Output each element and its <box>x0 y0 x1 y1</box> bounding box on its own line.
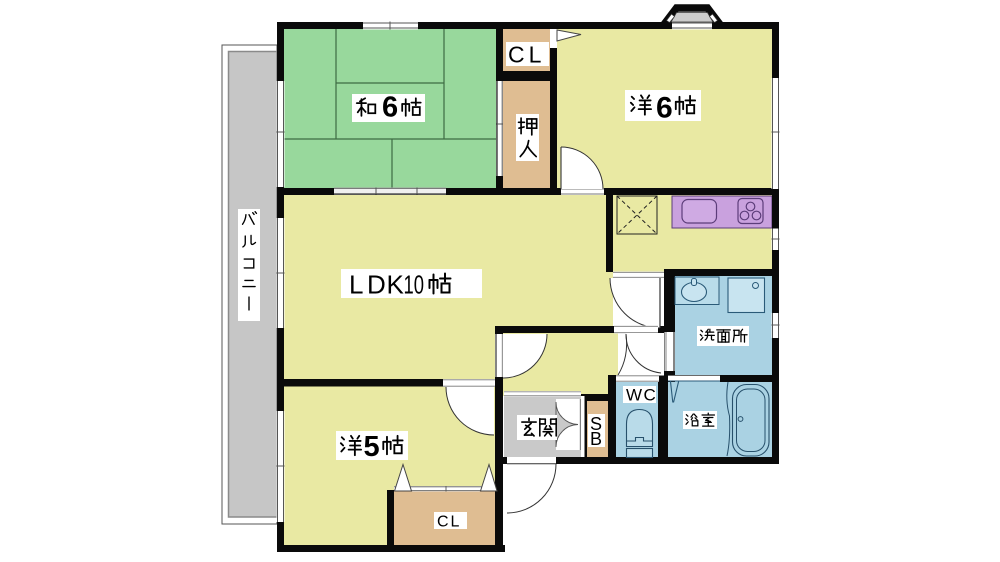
svg-text:10: 10 <box>404 270 425 300</box>
svg-text:K: K <box>387 270 405 300</box>
svg-text:6: 6 <box>656 92 673 125</box>
svg-text:6: 6 <box>382 92 398 124</box>
svg-text:WC: WC <box>626 386 657 405</box>
svg-text:D: D <box>367 270 386 300</box>
svg-text:L: L <box>349 270 363 300</box>
svg-text:5: 5 <box>364 431 380 463</box>
svg-text:B: B <box>590 429 602 449</box>
svg-text:CL: CL <box>508 42 545 68</box>
svg-text:CL: CL <box>437 514 461 531</box>
